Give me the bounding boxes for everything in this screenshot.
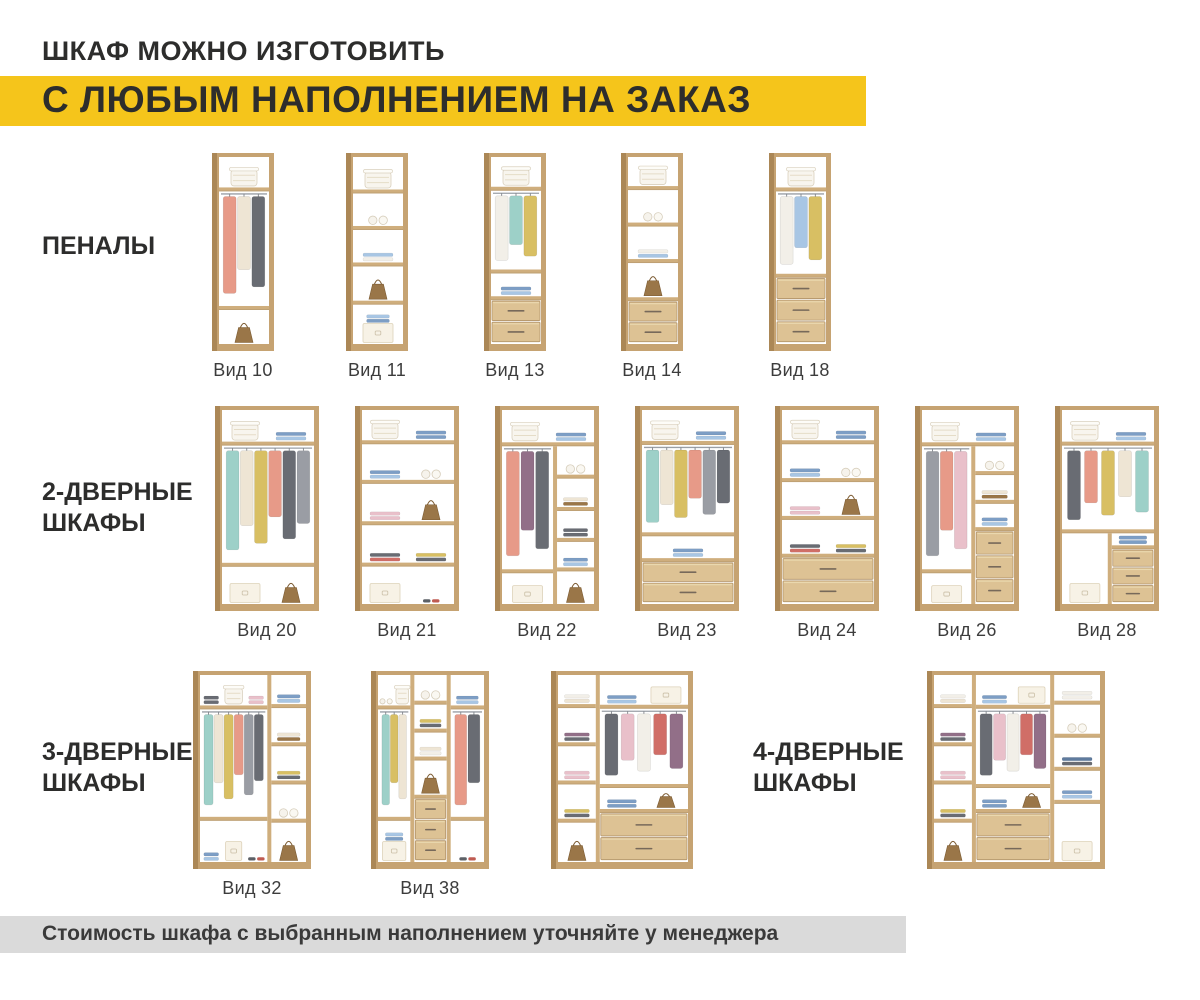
wardrobe-caption: Вид 21 [337,620,477,641]
wardrobe-caption: Вид 20 [197,620,337,641]
section-label-4-door: 4-ДВЕРНЫЕ ШКАФЫ [753,737,938,800]
wardrobe-illustration [621,153,683,351]
wardrobe-illustration [915,406,1019,611]
wardrobe-illustration [484,153,546,351]
wardrobe-illustration [212,153,274,351]
wardrobe-illustration [1055,406,1159,611]
wardrobe-illustration [355,406,459,611]
wardrobe-illustration [769,153,831,351]
wardrobe-caption: Вид 22 [477,620,617,641]
wardrobe-illustration [551,671,693,869]
wardrobe-caption: Вид 24 [757,620,897,641]
wardrobe-caption: Вид 13 [445,360,585,381]
wardrobe-illustration [495,406,599,611]
wardrobe-caption: Вид 26 [897,620,1037,641]
wardrobe-caption: Вид 11 [307,360,447,381]
section-label-penaly: ПЕНАЛЫ [42,231,155,262]
wardrobe-illustration [635,406,739,611]
section-label-3-door: 3-ДВЕРНЫЕ ШКАФЫ [42,737,217,800]
wardrobe-item [621,153,683,356]
wardrobe-item [769,153,831,356]
wardrobe-illustration [215,406,319,611]
wardrobe-illustration [346,153,408,351]
headline: ШКАФ МОЖНО ИЗГОТОВИТЬ [42,36,445,67]
wardrobe-item [371,671,489,874]
headline-highlighted: С ЛЮБЫМ НАПОЛНЕНИЕМ НА ЗАКАЗ [42,79,751,121]
wardrobe-item [212,153,274,356]
wardrobe-item [915,406,1019,616]
wardrobe-item [495,406,599,616]
wardrobe-illustration [775,406,879,611]
wardrobe-item [927,671,1105,874]
wardrobe-item [1055,406,1159,616]
wardrobe-item [193,671,311,874]
wardrobe-caption: Вид 23 [617,620,757,641]
wardrobe-item [484,153,546,356]
wardrobe-item [635,406,739,616]
wardrobe-caption: Вид 28 [1037,620,1177,641]
highlight-bar: С ЛЮБЫМ НАПОЛНЕНИЕМ НА ЗАКАЗ [0,76,866,126]
wardrobe-caption: Вид 18 [730,360,870,381]
wardrobe-item [346,153,408,356]
wardrobe-illustration [193,671,311,869]
wardrobe-illustration [371,671,489,869]
section-label-2-door: 2-ДВЕРНЫЕ ШКАФЫ [42,477,217,540]
wardrobe-item [551,671,693,874]
wardrobe-caption: Вид 32 [182,878,322,899]
footer-note: Стоимость шкафа с выбранным наполнением … [42,922,778,946]
wardrobe-item [355,406,459,616]
wardrobe-illustration [927,671,1105,869]
wardrobe-caption: Вид 10 [173,360,313,381]
poster: ШКАФ МОЖНО ИЗГОТОВИТЬ С ЛЮБЫМ НАПОЛНЕНИЕ… [0,0,1200,1000]
wardrobe-caption: Вид 14 [582,360,722,381]
footer-bar: Стоимость шкафа с выбранным наполнением … [0,916,906,953]
wardrobe-item [215,406,319,616]
wardrobe-item [775,406,879,616]
wardrobe-caption: Вид 38 [360,878,500,899]
